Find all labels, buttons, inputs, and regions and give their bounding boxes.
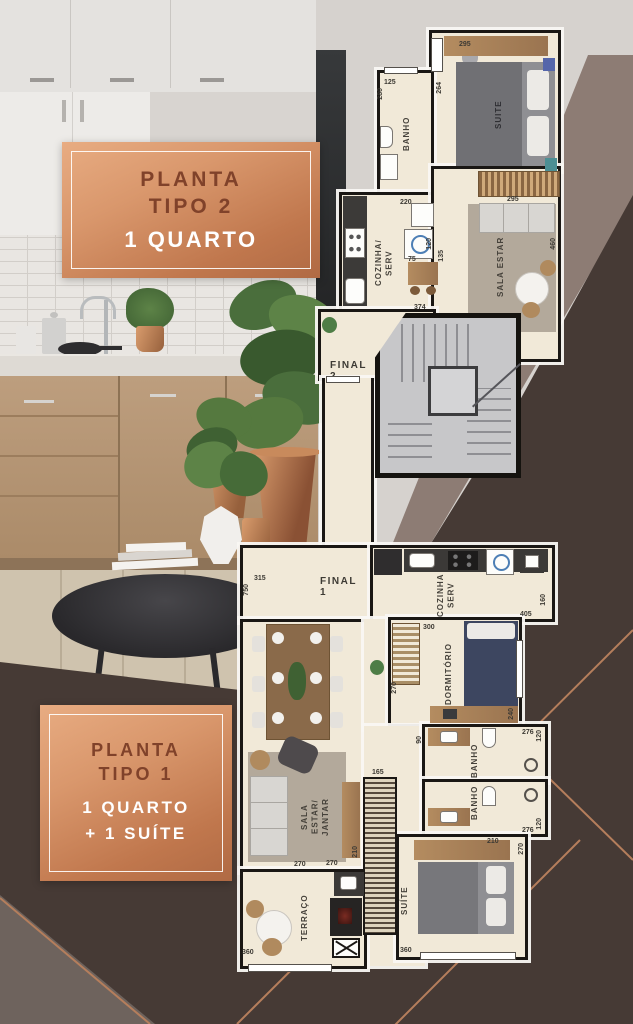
label-banho-t2: BANHO	[402, 110, 412, 158]
fridge	[374, 549, 402, 575]
window	[516, 640, 523, 698]
window	[384, 67, 418, 74]
plate	[310, 672, 322, 684]
dim: 270	[326, 860, 338, 867]
pillow	[486, 898, 506, 926]
dim: 210	[352, 846, 359, 858]
toilet	[482, 728, 496, 748]
window	[431, 38, 443, 72]
chair	[330, 636, 343, 652]
cooktop-burners	[448, 551, 478, 570]
washer-drum	[493, 554, 510, 571]
dim: 120	[536, 730, 543, 742]
label-final1: FINAL 1	[320, 576, 357, 598]
dim: 750	[243, 584, 250, 596]
side-table	[250, 750, 270, 770]
plate	[272, 712, 284, 724]
sofa-seam	[528, 204, 529, 232]
chair	[410, 286, 420, 295]
stairwell	[375, 313, 521, 478]
chair	[252, 676, 265, 692]
shower-head	[524, 758, 538, 772]
entry-plant	[322, 317, 337, 333]
kitchen-sink	[409, 553, 435, 568]
bath-sink	[440, 811, 458, 823]
chair	[252, 636, 265, 652]
chair	[330, 676, 343, 692]
sofa	[250, 776, 288, 856]
dim: 315	[254, 575, 266, 582]
dim: 75	[408, 256, 416, 263]
nightstand-decor	[543, 58, 555, 71]
bed-blanket	[418, 862, 478, 934]
bath-sink	[440, 731, 458, 743]
kitchen-sink	[345, 278, 365, 304]
dim: 295	[507, 196, 519, 203]
sofa	[479, 203, 555, 233]
chair	[252, 712, 265, 728]
laptop	[443, 709, 457, 719]
terrace-sink	[340, 876, 357, 890]
hall-corridor	[322, 378, 374, 550]
window	[420, 952, 516, 960]
pillow	[486, 866, 506, 894]
label-dormitorio: DORMITÓRIO	[444, 636, 454, 712]
chair	[246, 900, 264, 918]
dim: 374	[414, 304, 426, 311]
dim: 220	[400, 199, 412, 206]
window	[248, 964, 332, 972]
pillow	[467, 623, 515, 639]
chair	[262, 938, 282, 956]
badge-frame	[71, 151, 311, 269]
label-cozinha-t1: COZINHA SERV	[436, 572, 457, 618]
nightstand-decor	[545, 158, 557, 171]
dim: 210	[487, 838, 499, 845]
toilet	[482, 786, 496, 806]
plate	[310, 712, 322, 724]
dim: 300	[423, 624, 435, 631]
entry-door	[326, 376, 360, 383]
wardrobe	[392, 623, 420, 685]
cooktop-burners	[345, 228, 365, 258]
label-sala-t2: SALA ESTAR	[496, 228, 506, 306]
label-suite-t2: SUITE	[494, 85, 504, 145]
dim: 264	[436, 82, 443, 94]
badge-tipo1: PLANTA TIPO 1 1 QUARTO + 1 SUÍTE	[40, 705, 232, 881]
slat-bench	[478, 171, 560, 197]
centerpiece-plant	[288, 662, 306, 700]
grill-coal	[338, 908, 352, 924]
dim: 270	[391, 682, 398, 694]
plate	[272, 672, 284, 684]
dim: 125	[384, 79, 396, 86]
dim: 360	[242, 949, 254, 956]
dim: 270	[518, 843, 525, 855]
plate	[310, 632, 322, 644]
dim: 165	[372, 769, 384, 776]
dim: 120	[426, 238, 433, 250]
dim: 135	[438, 250, 445, 262]
dim: 160	[540, 594, 547, 606]
chair	[330, 712, 343, 728]
oven	[411, 203, 434, 227]
sofa-seam	[251, 828, 287, 829]
dim: 270	[294, 861, 306, 868]
label-sala-t1: SALA ESTAR/ JANTAR	[300, 786, 331, 848]
elevator-core	[428, 366, 478, 416]
dim: 295	[459, 41, 471, 48]
pillow	[527, 70, 549, 110]
shower-head	[524, 788, 538, 802]
bath-sink	[380, 154, 398, 180]
dim: 240	[508, 708, 515, 720]
dim: 360	[400, 947, 412, 954]
label-terraco: TERRAÇO	[300, 892, 310, 944]
chair	[426, 286, 436, 295]
label-banho-b: BANHO	[470, 786, 480, 820]
dim: 460	[550, 238, 557, 250]
round-table	[515, 272, 549, 306]
bed-blanket	[456, 62, 522, 166]
badge-tipo2: PLANTA TIPO 2 1 QUARTO	[62, 142, 320, 278]
tank-basin	[525, 555, 539, 568]
small-table	[408, 262, 438, 285]
chair	[540, 260, 556, 276]
toilet	[380, 126, 393, 148]
dim: 276	[522, 827, 534, 834]
badge-frame	[49, 714, 223, 872]
corridor-plant	[370, 660, 384, 675]
poster-canvas: SUITE BANHO COZINHA/ SERV SALA ESTAR FIN…	[0, 0, 633, 1024]
chair	[522, 302, 540, 318]
label-banho-a: BANHO	[470, 744, 480, 778]
sofa-seam	[251, 802, 287, 803]
dim: 276	[522, 729, 534, 736]
plate	[272, 632, 284, 644]
label-cozinha-t2: COZINHA/ SERV	[374, 232, 395, 294]
dim: 280	[377, 88, 384, 100]
stair-treads	[388, 419, 432, 467]
label-suite-t1: SUÍTE	[400, 880, 410, 922]
internal-stairs	[363, 777, 397, 935]
dim: 90	[416, 736, 423, 744]
dim: 120	[536, 818, 543, 830]
pillow	[527, 116, 549, 156]
dim: 405	[520, 611, 532, 618]
